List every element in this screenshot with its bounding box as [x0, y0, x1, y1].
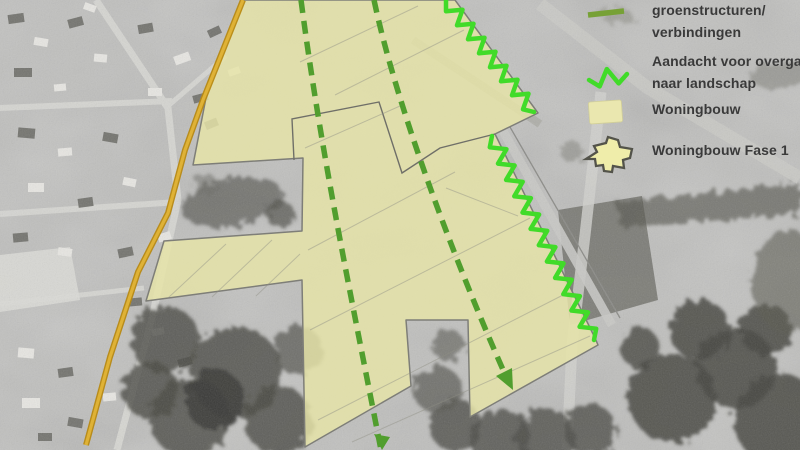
legend-label-green-structures-2: verbindingen	[652, 25, 741, 40]
legend-label-transition-2: naar landschap	[652, 76, 756, 91]
housing-area-swatch-icon	[588, 100, 622, 124]
legend-label-green-structures-1: groenstructuren/	[652, 3, 766, 18]
aerial-plan-map: groenstructuren/ verbindingen Aandacht v…	[0, 0, 800, 450]
legend-label-housing: Woningbouw	[652, 102, 741, 117]
legend-label-transition-1: Aandacht voor overga	[652, 54, 800, 69]
legend-label-housing-phase1: Woningbouw Fase 1	[652, 143, 789, 158]
